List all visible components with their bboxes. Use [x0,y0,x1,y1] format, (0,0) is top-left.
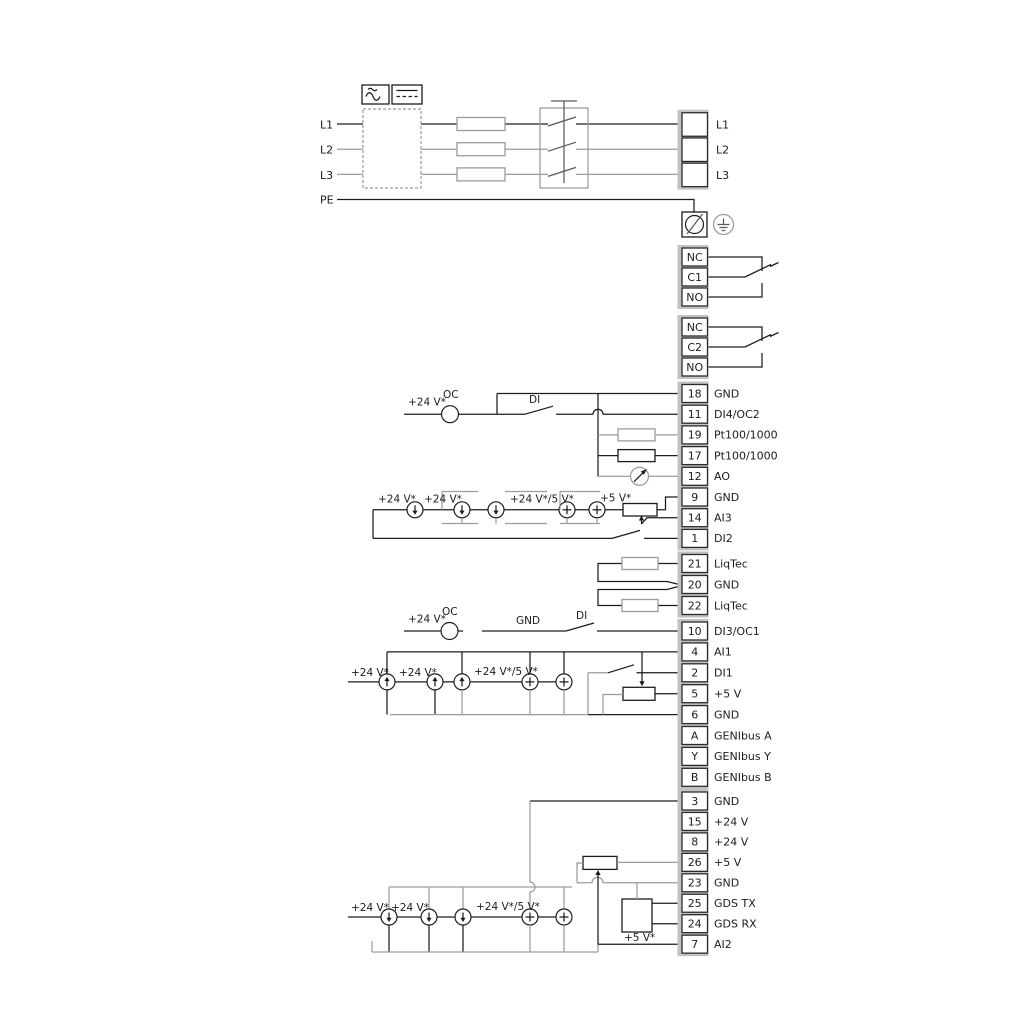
terminal-number: 9 [691,491,698,504]
terminal-number: 23 [688,877,702,890]
liqtec-terminal-strip: 21LiqTec20GND22LiqTec [678,552,748,618]
dc-symbol-box [392,85,422,104]
annotation-gnd: GND [516,615,540,627]
annotation-24v: +24 V* [424,494,462,506]
annotation-24v-5v: +24 V*/5 V* [474,666,538,678]
terminal-number: 25 [688,897,702,910]
terminal-label: GDS TX [714,897,756,910]
liqtec-wiring [598,558,682,612]
relay2-terminal-block: NCC2NO [678,315,709,379]
io3-wiring [348,801,682,952]
terminal-label: +24 V [714,815,749,828]
annotation-24v-5v: +24 V*/5 V* [476,901,540,913]
annotation-5v: +5 V* [600,493,631,505]
voltage-source-icon [556,674,572,690]
terminal-number: NO [686,291,703,304]
current-source-icon [454,674,470,690]
annotation-24v: +24 V* [378,494,416,506]
terminal-number: NC [687,251,703,264]
terminal-number: 14 [688,512,702,525]
terminal-number: 24 [688,918,702,931]
annotation-24v: +24 V* [399,667,437,679]
terminal-label: GND [714,578,739,591]
terminal-number: NO [686,361,703,374]
terminal-number: 17 [688,449,702,462]
terminal-number: B [691,771,699,784]
terminal-number: 6 [691,708,698,721]
power-output-label-l1: L1 [716,119,729,132]
terminal-label: GENIbus Y [714,750,771,763]
terminal-label: +5 V [714,688,742,701]
io-terminal-strip-3: 3GND15+24 V8+24 V26+5 V23GND25GDS TX24GD… [678,789,758,956]
power-input-label-pe: PE [320,194,334,207]
current-source-icon [455,909,471,925]
terminal-label: GND [714,491,739,504]
potentiometer-2 [623,687,655,700]
voltage-source-icon [556,909,572,925]
terminal-number: 11 [688,408,702,421]
terminal-label: GND [714,877,739,890]
power-wires [337,124,694,212]
fuse-l2 [457,143,505,156]
terminal-number: 20 [688,578,702,591]
power-output-label-l3: L3 [716,169,729,182]
terminal-number: 8 [691,836,698,849]
wiring-diagram: L1 L2 L3 PE L1 L [0,0,1024,1024]
terminal-number: Y [690,750,698,763]
terminal-number: 7 [691,938,698,951]
annotation-24v: +24 V* [391,902,429,914]
terminal-cell [682,138,708,162]
power-input-label-l1: L1 [320,119,333,132]
annotation-24v: +24 V* [408,397,446,409]
terminal-number: 18 [688,387,702,400]
io1-wiring [373,394,682,539]
annotation-24v: +24 V* [408,614,446,626]
annotation-oc: OC [442,606,458,618]
potentiometer-1 [623,504,657,517]
terminal-label: Pt100/1000 [714,429,778,442]
power-terminal-block [678,110,709,190]
terminal-number: A [691,729,699,742]
relay1-terminal-block: NCC1NO [678,245,709,309]
terminal-number: 12 [688,470,702,483]
terminal-number: 10 [688,625,702,638]
io-terminal-strip-2: 10DI3/OC14AI12DI15+5 V6GNDAGENIbus AYGEN… [678,619,773,789]
terminal-number: 22 [688,599,702,612]
terminal-cell [682,163,708,187]
terminal-number: 4 [691,646,698,659]
terminal-label: AO [714,470,730,483]
power-input-label-l2: L2 [320,144,333,157]
annotation-24v: +24 V* [351,667,389,679]
terminal-label: AI2 [714,938,732,951]
power-input-label-l3: L3 [320,169,333,182]
terminal-label: GDS RX [714,918,757,931]
terminal-label: GND [714,708,739,721]
gds-sensor-box [622,899,652,932]
current-source-icon [488,502,504,518]
relay1-contact [708,257,779,297]
terminal-label: GND [714,387,739,400]
pt100-sensor-1 [618,429,655,441]
terminal-label: GENIbus B [714,771,772,784]
terminal-label: Pt100/1000 [714,449,778,462]
terminal-label: LiqTec [714,557,748,570]
terminal-number: 26 [688,856,702,869]
terminal-number: 19 [688,429,702,442]
ac-symbol-box [362,85,389,104]
terminal-number: 5 [691,688,698,701]
terminal-label: AI3 [714,512,732,525]
terminal-number: C2 [687,341,702,354]
terminal-number: C1 [687,271,702,284]
terminal-label: DI3/OC1 [714,625,760,638]
terminal-label: AI1 [714,646,732,659]
annotation-oc: OC [443,389,459,401]
terminal-label: +5 V [714,856,742,869]
annotation-24v: +24 V* [351,902,389,914]
terminal-label: +24 V [714,836,749,849]
fuse-l1 [457,118,505,131]
pt100-sensor-2 [618,450,655,462]
terminal-label: GENIbus A [714,729,772,742]
power-output-label-l2: L2 [716,144,729,157]
liqtec-sensor-2 [622,600,658,612]
terminal-label: LiqTec [714,599,748,612]
terminal-number: 15 [688,815,702,828]
annotation-di: DI [576,610,587,622]
terminal-label: GND [714,795,739,808]
io-terminal-strip-1: 18GND11DI4/OC219Pt100/100017Pt100/100012… [678,382,778,551]
power-section: L1 L2 L3 PE L1 L [320,85,729,212]
wiring-diagram-canvas: L1 L2 L3 PE L1 L [0,0,1024,1024]
annotation-5v: +5 V* [624,932,655,944]
annotation-di: DI [529,394,540,406]
terminal-label: DI1 [714,667,733,680]
terminal-number: NC [687,321,703,334]
relay2-contact [708,327,779,367]
annotation-24v-5v: +24 V*/5 V* [510,494,574,506]
terminal-number: 1 [691,532,698,545]
terminal-number: 21 [688,557,702,570]
terminal-number: 3 [691,795,698,808]
emc-filter-box [363,109,421,188]
liqtec-sensor-1 [622,558,658,570]
terminal-cell [682,113,708,137]
earth-icon [714,215,734,235]
terminal-label: DI2 [714,532,733,545]
potentiometer-3 [583,856,617,869]
fuse-l3 [457,168,505,181]
terminal-label: DI4/OC2 [714,408,760,421]
pe-ground-section [682,212,734,237]
terminal-number: 2 [691,667,698,680]
analog-output-meter-icon [631,467,649,485]
